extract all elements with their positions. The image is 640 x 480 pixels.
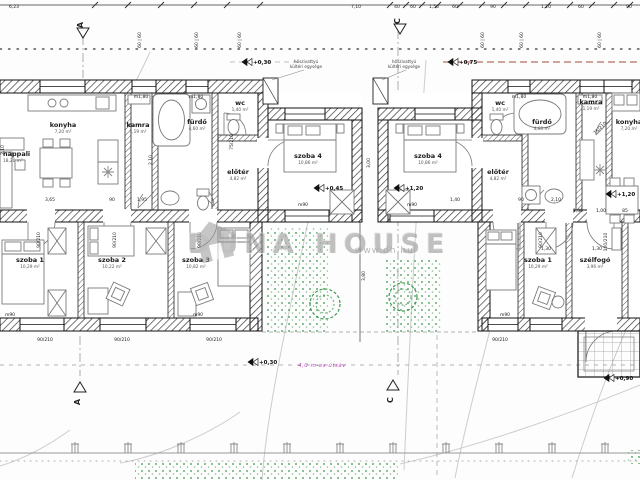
dimension-label: 90/210: [538, 232, 544, 248]
room-label: konyha: [616, 118, 640, 126]
room-area-label: 4,60 m²: [534, 126, 551, 132]
symbol: [242, 59, 247, 66]
room-area-label: 1,19 m²: [583, 106, 600, 112]
dimension-label: 60 | 60: [519, 32, 525, 48]
dimension-label: m90: [193, 312, 203, 318]
heat-pump-label: kültéri egysége: [388, 64, 421, 69]
dimension-label: m1,80: [512, 94, 527, 100]
symbol: [177, 442, 185, 453]
dimension-label: 90/210: [36, 232, 42, 248]
room-area-label: 1,19 m²: [130, 129, 147, 135]
dimension-label: 1,00: [596, 208, 606, 214]
symbol: [389, 442, 397, 453]
dimension-label: 1,30: [541, 246, 551, 252]
symbol: [442, 442, 450, 453]
room-label: szoba 4: [414, 152, 442, 160]
level-label: +0,75: [459, 60, 477, 66]
room-label: előtér: [487, 167, 510, 176]
symbol: [230, 442, 238, 453]
garden-hatch-right: [386, 258, 442, 332]
wall: [250, 222, 262, 331]
dimension-label: 90: [518, 197, 524, 203]
dimension-label: 1,20: [541, 4, 551, 10]
heat-pump-labels-layer: hőszivattyúkültéri egységehőszivattyúkül…: [290, 59, 421, 69]
dimension-label: 90/210: [112, 232, 118, 248]
room-label: szoba 1: [524, 256, 552, 264]
room-label: szélfogó: [580, 256, 611, 264]
level-label: +0,45: [325, 186, 343, 192]
level-label: +1,20: [405, 186, 423, 192]
room-label: kamra: [126, 121, 149, 129]
dimension-label: 2,10: [0, 145, 6, 155]
dimension-label: m90: [500, 312, 510, 318]
symbol: [548, 442, 556, 453]
toilet: [197, 189, 209, 196]
room-area-label: 1,40 m²: [232, 107, 249, 113]
room-area-label: 1,40 m²: [492, 107, 509, 113]
dimension-label: m90: [298, 202, 308, 208]
dimension-label: m1,80: [134, 94, 149, 100]
room-label: szoba 4: [294, 152, 322, 160]
level-label: +0,30: [259, 360, 277, 366]
symbol: [495, 442, 503, 453]
dimension-label: 60: [452, 4, 458, 10]
dimension-label: 75/210: [229, 134, 235, 150]
room-area-label: 10,22 m²: [102, 264, 122, 270]
symbol: [448, 59, 453, 66]
dimension-label: 1,30: [592, 246, 602, 252]
dimension-label: 90: [490, 4, 496, 10]
symbol: [253, 359, 258, 366]
dimension-label: 90: [626, 4, 632, 10]
room-area-label: 10,82 m²: [186, 264, 206, 270]
dimension-label: 60 | 60: [480, 32, 486, 48]
dimension-label: m90: [407, 202, 417, 208]
dimension-label: 90/210: [37, 337, 53, 343]
symbol: [247, 59, 252, 66]
room-area-label: 4,82 m²: [230, 176, 247, 182]
section-letter: A: [76, 21, 85, 28]
washing-machine: [522, 186, 540, 204]
dimension-label: 90/210: [492, 337, 508, 343]
dimension-label: 3,80: [361, 271, 367, 281]
dimension-label: 90/210: [197, 232, 203, 248]
room-area-label: 3,96 m²: [587, 264, 604, 270]
section-letter: C: [393, 18, 402, 24]
dimension-label: 90: [109, 197, 115, 203]
dimension-label: 60: [578, 4, 584, 10]
dimension-label: 40: [394, 4, 400, 10]
garden-hatch-left: [266, 228, 328, 332]
desk: [88, 288, 108, 314]
room-area-label: 10,86 m²: [418, 160, 438, 166]
room-area-label: 10,29 m²: [20, 264, 40, 270]
room-label: szoba 2: [98, 256, 126, 264]
room-area-label: 7,20 m²: [621, 126, 638, 132]
dimension-label: 60 | 60: [137, 32, 143, 48]
symbol: [248, 359, 253, 366]
dimension-label: 60 | 60: [237, 32, 243, 48]
dimension-label: 90/210: [114, 337, 130, 343]
green-corner: [628, 450, 640, 464]
symbol: [394, 24, 406, 34]
shelf: [580, 140, 594, 180]
dimension-label: 90/210: [206, 337, 222, 343]
section-letter: A: [73, 398, 82, 405]
symbol: [336, 442, 344, 453]
entrance-steps: [578, 331, 640, 377]
floorplan-canvas: nappali18,20 m²konyha7,20 m²kamra1,19 m²…: [0, 0, 640, 480]
dimension-label: 3,65: [45, 197, 55, 203]
kitchen-counter: [612, 93, 640, 111]
dimension-label: 2,10: [551, 197, 561, 203]
room-label: wc: [495, 99, 505, 107]
room-label: fürdő: [187, 117, 207, 126]
dimension-label: 85: [622, 208, 628, 214]
room-area-label: 4,82 m²: [490, 176, 507, 182]
level-label: +0,30: [253, 60, 271, 66]
symbol: [387, 380, 399, 390]
closet: [612, 228, 621, 250]
symbol: [283, 442, 291, 453]
room-label: fürdő: [532, 117, 552, 126]
dimension-label: m90: [5, 312, 15, 318]
room-area-label: 18,20 m²: [3, 158, 23, 164]
level-label: +0,90: [615, 376, 633, 382]
dimension-label: 60 | 60: [597, 32, 603, 48]
dimension-label: 1,40: [450, 197, 460, 203]
dimension-label: 1,95: [137, 197, 147, 203]
dimension-label: m1,80: [189, 94, 204, 100]
symbol: [601, 442, 609, 453]
room-area-label: 7,20 m²: [55, 129, 72, 135]
dimension-label: 1,50: [429, 4, 439, 10]
dimension-label: m1,80: [583, 94, 598, 100]
dimension-label: 1,40: [573, 208, 583, 214]
symbol: [71, 442, 79, 453]
room-label: előtér: [227, 167, 250, 176]
room-label: szoba 3: [182, 256, 210, 264]
green-strip: [135, 463, 398, 479]
room-label: wc: [235, 99, 245, 107]
dimension-label: 60: [410, 4, 416, 10]
dimension-label: 2,10: [148, 155, 154, 165]
dimension-label: 7,10: [351, 4, 361, 10]
floorplan-page: nappali18,20 m²konyha7,20 m²kamra1,19 m²…: [0, 0, 640, 480]
dimension-label: 3,00: [366, 158, 372, 168]
room-label: szoba 1: [16, 256, 44, 264]
dimension-label: 100/210: [603, 233, 609, 252]
symbol: [74, 382, 86, 392]
dimension-label: 6,23: [9, 4, 19, 10]
room-label: nappali: [3, 150, 30, 158]
room-label: konyha: [50, 121, 77, 129]
symbol: [124, 442, 132, 453]
fence-posts: [71, 442, 609, 453]
room-area-label: 4,60 m²: [189, 126, 206, 132]
dimension-label: 60 | 60: [194, 32, 200, 48]
symbol: [453, 59, 458, 66]
heat-pump-label: kültéri egysége: [290, 64, 323, 69]
room-area-label: 10,86 m²: [298, 160, 318, 166]
sink-icon: [161, 191, 179, 205]
dining-table: [40, 148, 72, 178]
room-area-label: 10,29 m²: [528, 264, 548, 270]
level-label: +1,20: [617, 192, 635, 198]
section-letter: C: [386, 397, 395, 403]
